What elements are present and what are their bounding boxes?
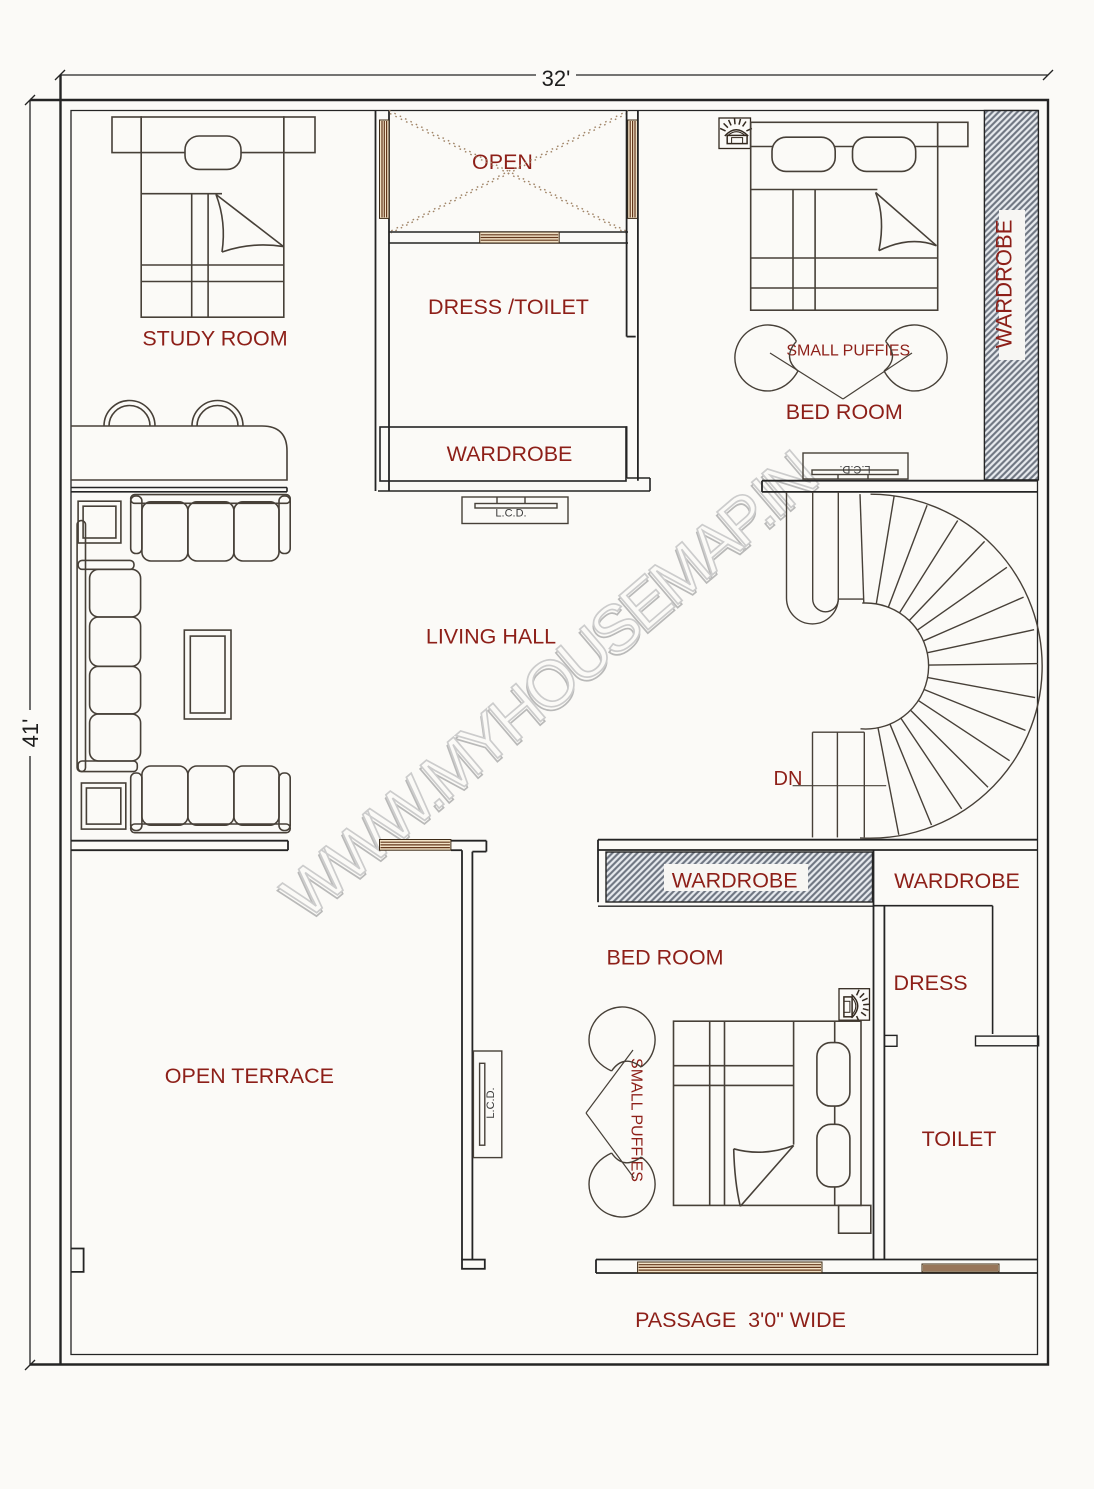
svg-text:SMALL PUFFIES: SMALL PUFFIES <box>628 1058 645 1182</box>
svg-text:PASSAGE 3'0" WIDE: PASSAGE 3'0" WIDE <box>635 1308 846 1332</box>
svg-text:DRESS: DRESS <box>894 971 968 995</box>
svg-text:LIVING HALL: LIVING HALL <box>426 625 556 649</box>
svg-text:41': 41' <box>18 719 43 748</box>
svg-text:DN: DN <box>774 768 803 790</box>
svg-text:L.C.D.: L.C.D. <box>839 463 870 475</box>
svg-text:L.C.D.: L.C.D. <box>485 1087 497 1118</box>
svg-text:32': 32' <box>542 66 571 91</box>
svg-text:DRESS /TOILET: DRESS /TOILET <box>428 295 589 319</box>
svg-text:WARDROBE: WARDROBE <box>894 869 1020 893</box>
svg-text:WARDROBE: WARDROBE <box>992 220 1017 349</box>
svg-text:WARDROBE: WARDROBE <box>672 868 798 892</box>
svg-text:BED ROOM: BED ROOM <box>606 946 723 970</box>
svg-text:STUDY ROOM: STUDY ROOM <box>142 327 287 351</box>
svg-text:L.C.D.: L.C.D. <box>495 508 526 520</box>
svg-text:TOILET: TOILET <box>922 1127 997 1151</box>
svg-text:OPEN TERRACE: OPEN TERRACE <box>165 1064 334 1088</box>
svg-text:BED ROOM: BED ROOM <box>786 400 903 424</box>
svg-text:WARDROBE: WARDROBE <box>447 442 573 466</box>
